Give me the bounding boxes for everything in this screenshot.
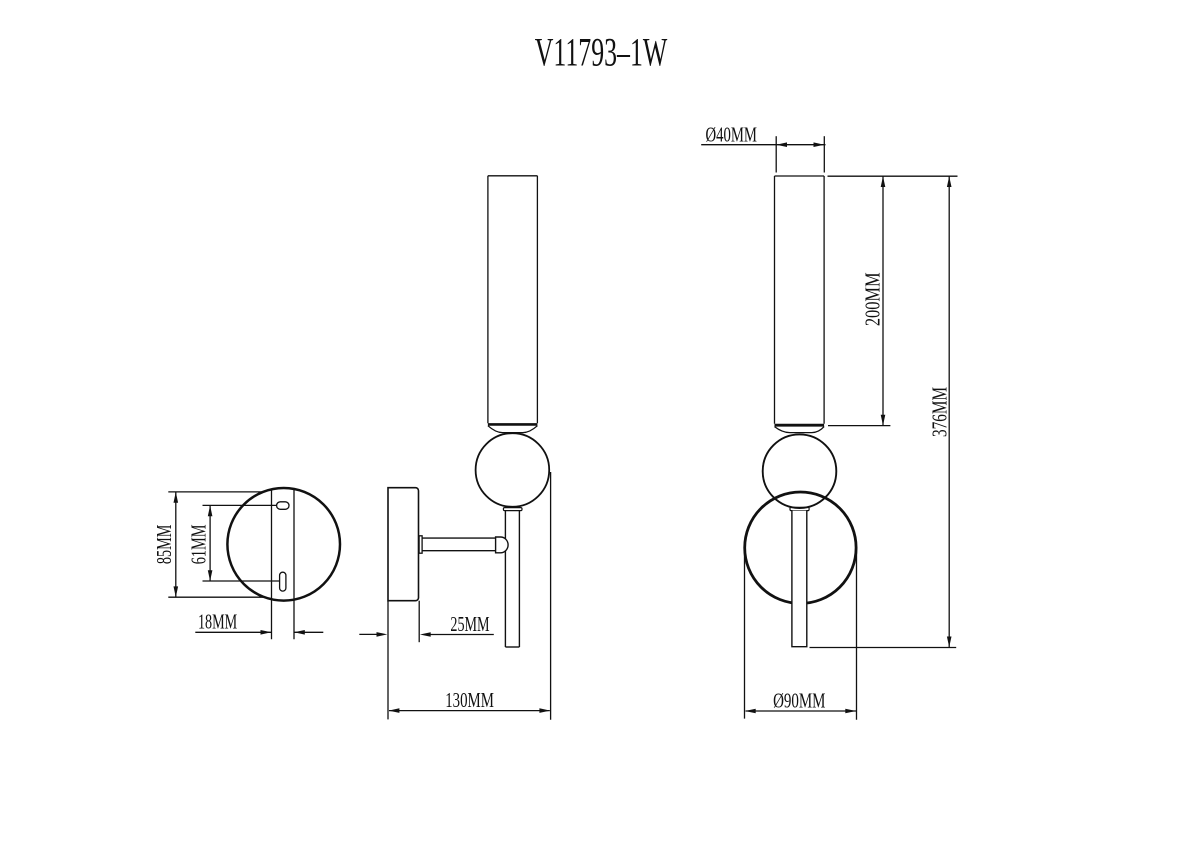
svg-text:V11793–1W: V11793–1W (535, 30, 668, 75)
svg-text:85MM: 85MM (152, 525, 176, 565)
svg-text:18MM: 18MM (198, 610, 237, 634)
svg-text:61MM: 61MM (186, 525, 210, 565)
svg-text:Ø40MM: Ø40MM (706, 123, 758, 147)
svg-text:200MM: 200MM (861, 272, 885, 326)
svg-text:376MM: 376MM (927, 387, 951, 437)
svg-text:Ø90MM: Ø90MM (773, 689, 825, 713)
svg-text:130MM: 130MM (445, 688, 494, 712)
svg-text:25MM: 25MM (450, 612, 489, 636)
